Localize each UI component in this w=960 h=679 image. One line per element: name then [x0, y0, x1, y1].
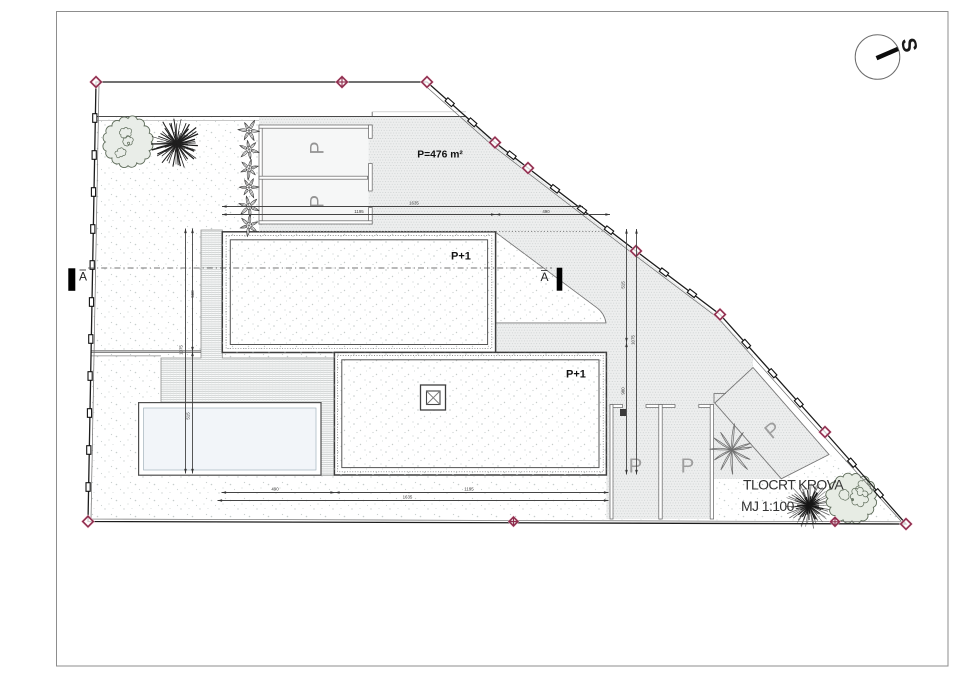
svg-text:980: 980: [621, 387, 626, 395]
svg-text:1635: 1635: [403, 494, 413, 499]
svg-text:1075: 1075: [178, 345, 183, 355]
svg-text:TLOCRT KROVA: TLOCRT KROVA: [743, 476, 844, 492]
svg-text:1635: 1635: [409, 200, 419, 205]
svg-text:P: P: [681, 455, 695, 478]
svg-text:P: P: [629, 455, 643, 478]
svg-text:MJ 1:100: MJ 1:100: [741, 498, 795, 514]
svg-text:P: P: [307, 141, 329, 154]
svg-text:P+1: P+1: [566, 369, 586, 381]
svg-text:A: A: [541, 270, 549, 284]
svg-text:1195: 1195: [354, 209, 364, 214]
svg-text:1075: 1075: [631, 335, 636, 345]
svg-text:A: A: [79, 270, 87, 284]
svg-text:515: 515: [621, 281, 626, 289]
svg-text:1195: 1195: [464, 486, 474, 491]
svg-text:515: 515: [185, 412, 190, 420]
svg-text:P=476 m²: P=476 m²: [417, 149, 463, 160]
svg-text:490: 490: [542, 209, 550, 214]
svg-text:490: 490: [271, 486, 279, 491]
svg-text:560: 560: [190, 290, 195, 298]
svg-text:P+1: P+1: [451, 251, 471, 263]
